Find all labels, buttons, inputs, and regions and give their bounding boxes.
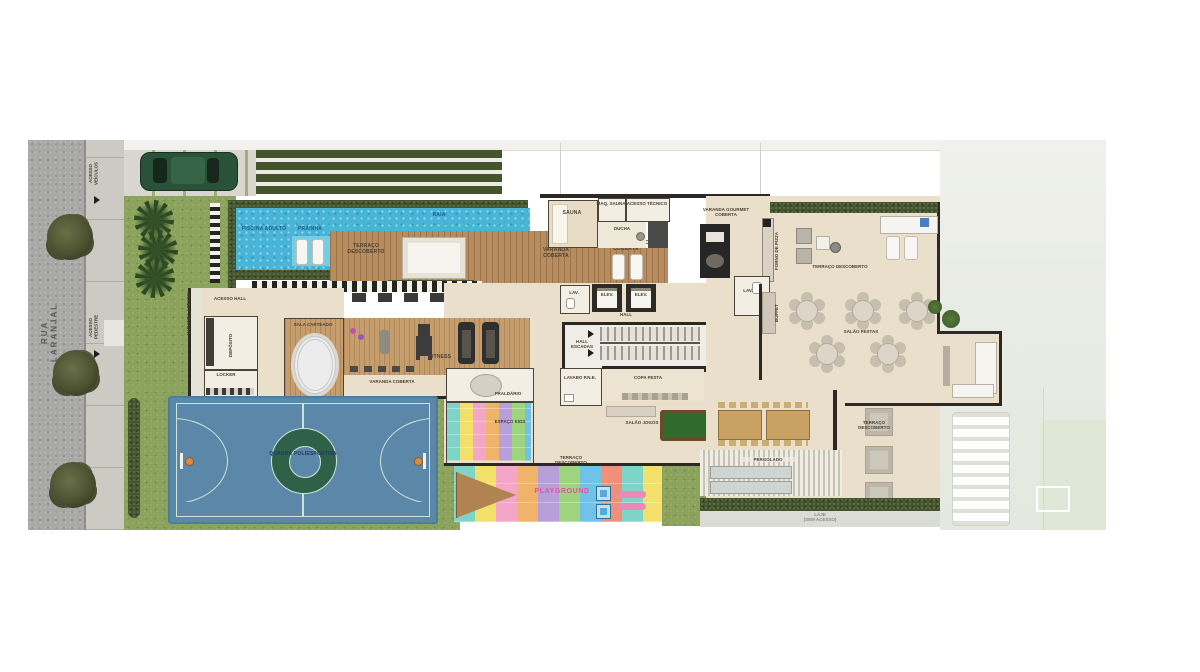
- rest-lounger-icon: [630, 254, 643, 280]
- elevator: [592, 284, 622, 312]
- swing-icon: [596, 504, 611, 519]
- pergola-table: [710, 466, 792, 479]
- party-table-icon: [877, 343, 899, 365]
- west-varanda-label: VARANDA ACESSO: [186, 292, 191, 336]
- seesaw-icon: [618, 491, 646, 498]
- firepit-chair-icon: [796, 248, 812, 264]
- elevator-label: ELEV.: [593, 292, 621, 297]
- slab-label: LAJE (SEM ACESSO): [778, 512, 862, 523]
- daybed-cabana: [402, 237, 466, 279]
- copa-counter: [622, 393, 688, 400]
- outdoor-sofa: [880, 216, 938, 234]
- car-roof: [171, 157, 205, 184]
- chair-row: [718, 402, 808, 408]
- party-hall-label: SALÃO FESTAS: [840, 329, 882, 334]
- street-tree-icon: [53, 350, 99, 396]
- wet-lounger-icon: [312, 239, 324, 265]
- firepit-table-icon: [816, 236, 830, 250]
- east-hedge-bottom: [700, 498, 940, 511]
- seesaw-icon: [618, 503, 646, 510]
- gym-multistation-icon: [418, 324, 430, 356]
- side-terrace-label: TERRAÇO DESCOBERTO: [848, 420, 900, 431]
- pizza-oven-label: FORNO DE PIZZA: [774, 224, 779, 278]
- card-table-icon: [294, 336, 336, 394]
- swing-icon: [596, 486, 611, 501]
- locker-label: LOCKER: [204, 372, 248, 377]
- party-table-icon: [796, 300, 818, 322]
- west-varanda-strip: [190, 288, 202, 398]
- firepit-icon: [830, 242, 841, 253]
- garden-lounger-icon: [886, 236, 900, 260]
- pergola-table: [710, 481, 792, 494]
- garden-hedge-top: [770, 202, 938, 213]
- shower-label: DUCHA: [604, 226, 640, 231]
- neighbor-goal: [1036, 486, 1070, 512]
- pedestrian-access-label: ACESSO PEDESTRE: [88, 306, 99, 348]
- deck-covered-label: VARANDA COBERTA: [534, 247, 578, 259]
- gourmet-cabinet: [700, 224, 730, 278]
- firepit-chair-icon: [796, 228, 812, 244]
- sink-icon: [564, 394, 574, 402]
- copa-label: COPA FESTA: [630, 375, 666, 380]
- annex-right-wall: [999, 331, 1002, 406]
- pool-lane-label: RAIA: [424, 212, 454, 218]
- kids-space-label: ESPAÇO KIDS: [492, 419, 528, 424]
- car-rear-window: [153, 158, 167, 183]
- stair-hall-label: HALL ESCADAS: [566, 339, 598, 350]
- tv-console: [943, 346, 950, 386]
- elevator: [626, 284, 656, 312]
- sauna-machine-label: MAQ. SAUNA: [595, 201, 627, 206]
- stair-arrow-icon: [588, 330, 594, 338]
- stair-divider: [600, 342, 700, 344]
- gym-bench-icon: [380, 330, 390, 354]
- lavabo-label: LAVABO P.N.E.: [562, 375, 598, 380]
- party-table-icon: [852, 300, 874, 322]
- gym-varanda-label: VARANDA COBERTA: [352, 379, 432, 384]
- wet-lounger-icon: [296, 239, 308, 265]
- neighbor-green-patch: [1040, 420, 1106, 530]
- kids-room-mat: [447, 403, 531, 461]
- basketball-hoop-icon: [180, 453, 183, 469]
- court-center-circle: [271, 428, 337, 494]
- street-tree-icon: [50, 462, 96, 508]
- palm-tree-icon: [135, 258, 175, 298]
- storage-label: DEPÓSITO: [228, 326, 233, 364]
- shower-head-icon: [636, 232, 645, 241]
- basketball-hoop-icon: [423, 453, 426, 469]
- hall-access-room: [204, 290, 260, 316]
- vehicle-access-arrow-icon: [94, 196, 100, 204]
- pergola-divider-wall: [833, 390, 837, 450]
- pool-adult-label: PISCINA ADULTO: [238, 226, 290, 232]
- fraldario-label: FRALDÁRIO: [486, 391, 530, 396]
- deck-open-terrace-label: TERRAÇO DESCOBERTO: [340, 243, 392, 255]
- treadmill-icon: [458, 322, 475, 364]
- dumbbell-rack-icon: [350, 366, 420, 372]
- court-three-point-left: [176, 418, 228, 502]
- games-shelf: [606, 406, 656, 417]
- party-table-icon: [816, 343, 838, 365]
- stair-flight-lower: [600, 346, 700, 360]
- chair-row: [718, 440, 808, 446]
- toilet-icon: [566, 298, 575, 309]
- neighbor-wall-line: [560, 143, 561, 195]
- neighbor-wall-line: [760, 143, 761, 201]
- pizza-oven-wall: [762, 218, 774, 282]
- street-tree-icon: [47, 214, 93, 260]
- garden-terrace-label: TERRAÇO DESCOBERTO: [812, 264, 868, 269]
- car-windshield: [207, 158, 219, 183]
- corner-bush-icon: [942, 310, 960, 328]
- pool-beach-label: PRAINHA: [288, 226, 332, 232]
- tech-shaft: [648, 222, 668, 248]
- basketball-hoop-icon: [414, 457, 423, 466]
- car: [140, 152, 238, 191]
- treadmill-icon: [482, 322, 499, 364]
- buffet-label: BUFFET: [774, 298, 779, 328]
- gym-ball-icon: [358, 334, 364, 340]
- corner-bush-icon: [928, 300, 942, 314]
- card-room-label: SALA CARTEADO: [292, 322, 334, 327]
- floor-plan: RUA LARANJAL ACESSO VEÍCULOS ACESSO PEDE…: [0, 0, 1200, 672]
- slab-label-line2: (SEM ACESSO): [778, 517, 862, 522]
- basketball-hoop-icon: [185, 457, 194, 466]
- pizza-oven-icon: [763, 219, 771, 227]
- long-table: [718, 410, 762, 440]
- stair-flight-upper: [600, 327, 700, 341]
- hall-label: HALL: [612, 312, 640, 317]
- sauna-label: SAUNA: [552, 210, 592, 216]
- playground-label: PLAYGROUND: [532, 488, 592, 496]
- court-label: QUADRA POLIESPORTIVA: [262, 451, 344, 457]
- rest-lounger-icon: [612, 254, 625, 280]
- games-label: SALÃO JOGOS: [624, 420, 660, 425]
- daybed-icon: [865, 446, 893, 474]
- sofa-pillow-icon: [920, 218, 929, 227]
- street-name-label: RUA LARANJAL: [40, 292, 59, 372]
- pool-ramp-hatch: [210, 203, 220, 283]
- party-table-icon: [906, 300, 928, 322]
- pool-hedge-top: [228, 200, 528, 208]
- billiards-table-icon: [660, 410, 708, 441]
- bush-row-left: [128, 398, 140, 518]
- pergolado-label: PERGOLADO: [740, 457, 796, 462]
- annex-bottom-wall: [845, 403, 1002, 406]
- storage-counter: [206, 318, 214, 366]
- annex-top-wall: [937, 331, 1002, 334]
- neighbor-pergola: [952, 412, 1010, 526]
- vehicle-access-label: ACESSO VEÍCULOS: [88, 152, 99, 194]
- garden-lounger-icon: [904, 236, 918, 260]
- gym-label: FITNESS: [420, 354, 460, 360]
- sports-court: [168, 396, 438, 524]
- gourmet-label: VARANDA GOURMET COBERTA: [692, 207, 760, 218]
- locker-row: [206, 388, 254, 395]
- core-lav-label: LAV.: [562, 290, 586, 295]
- hedge-rows: [256, 148, 502, 194]
- hall-access-label: ACESSO HALL: [210, 296, 250, 301]
- stair-arrow-icon: [588, 349, 594, 357]
- gym-ball-icon: [350, 328, 356, 334]
- tech-access-label: ACESSO TÉCNICO: [624, 201, 670, 206]
- pedestrian-access-arrow-icon: [94, 350, 100, 358]
- long-table: [766, 410, 810, 440]
- elevator-label: ELEV.: [627, 292, 655, 297]
- lounge-sofa-return: [952, 384, 994, 398]
- east-lav-label: LAV.: [736, 288, 760, 293]
